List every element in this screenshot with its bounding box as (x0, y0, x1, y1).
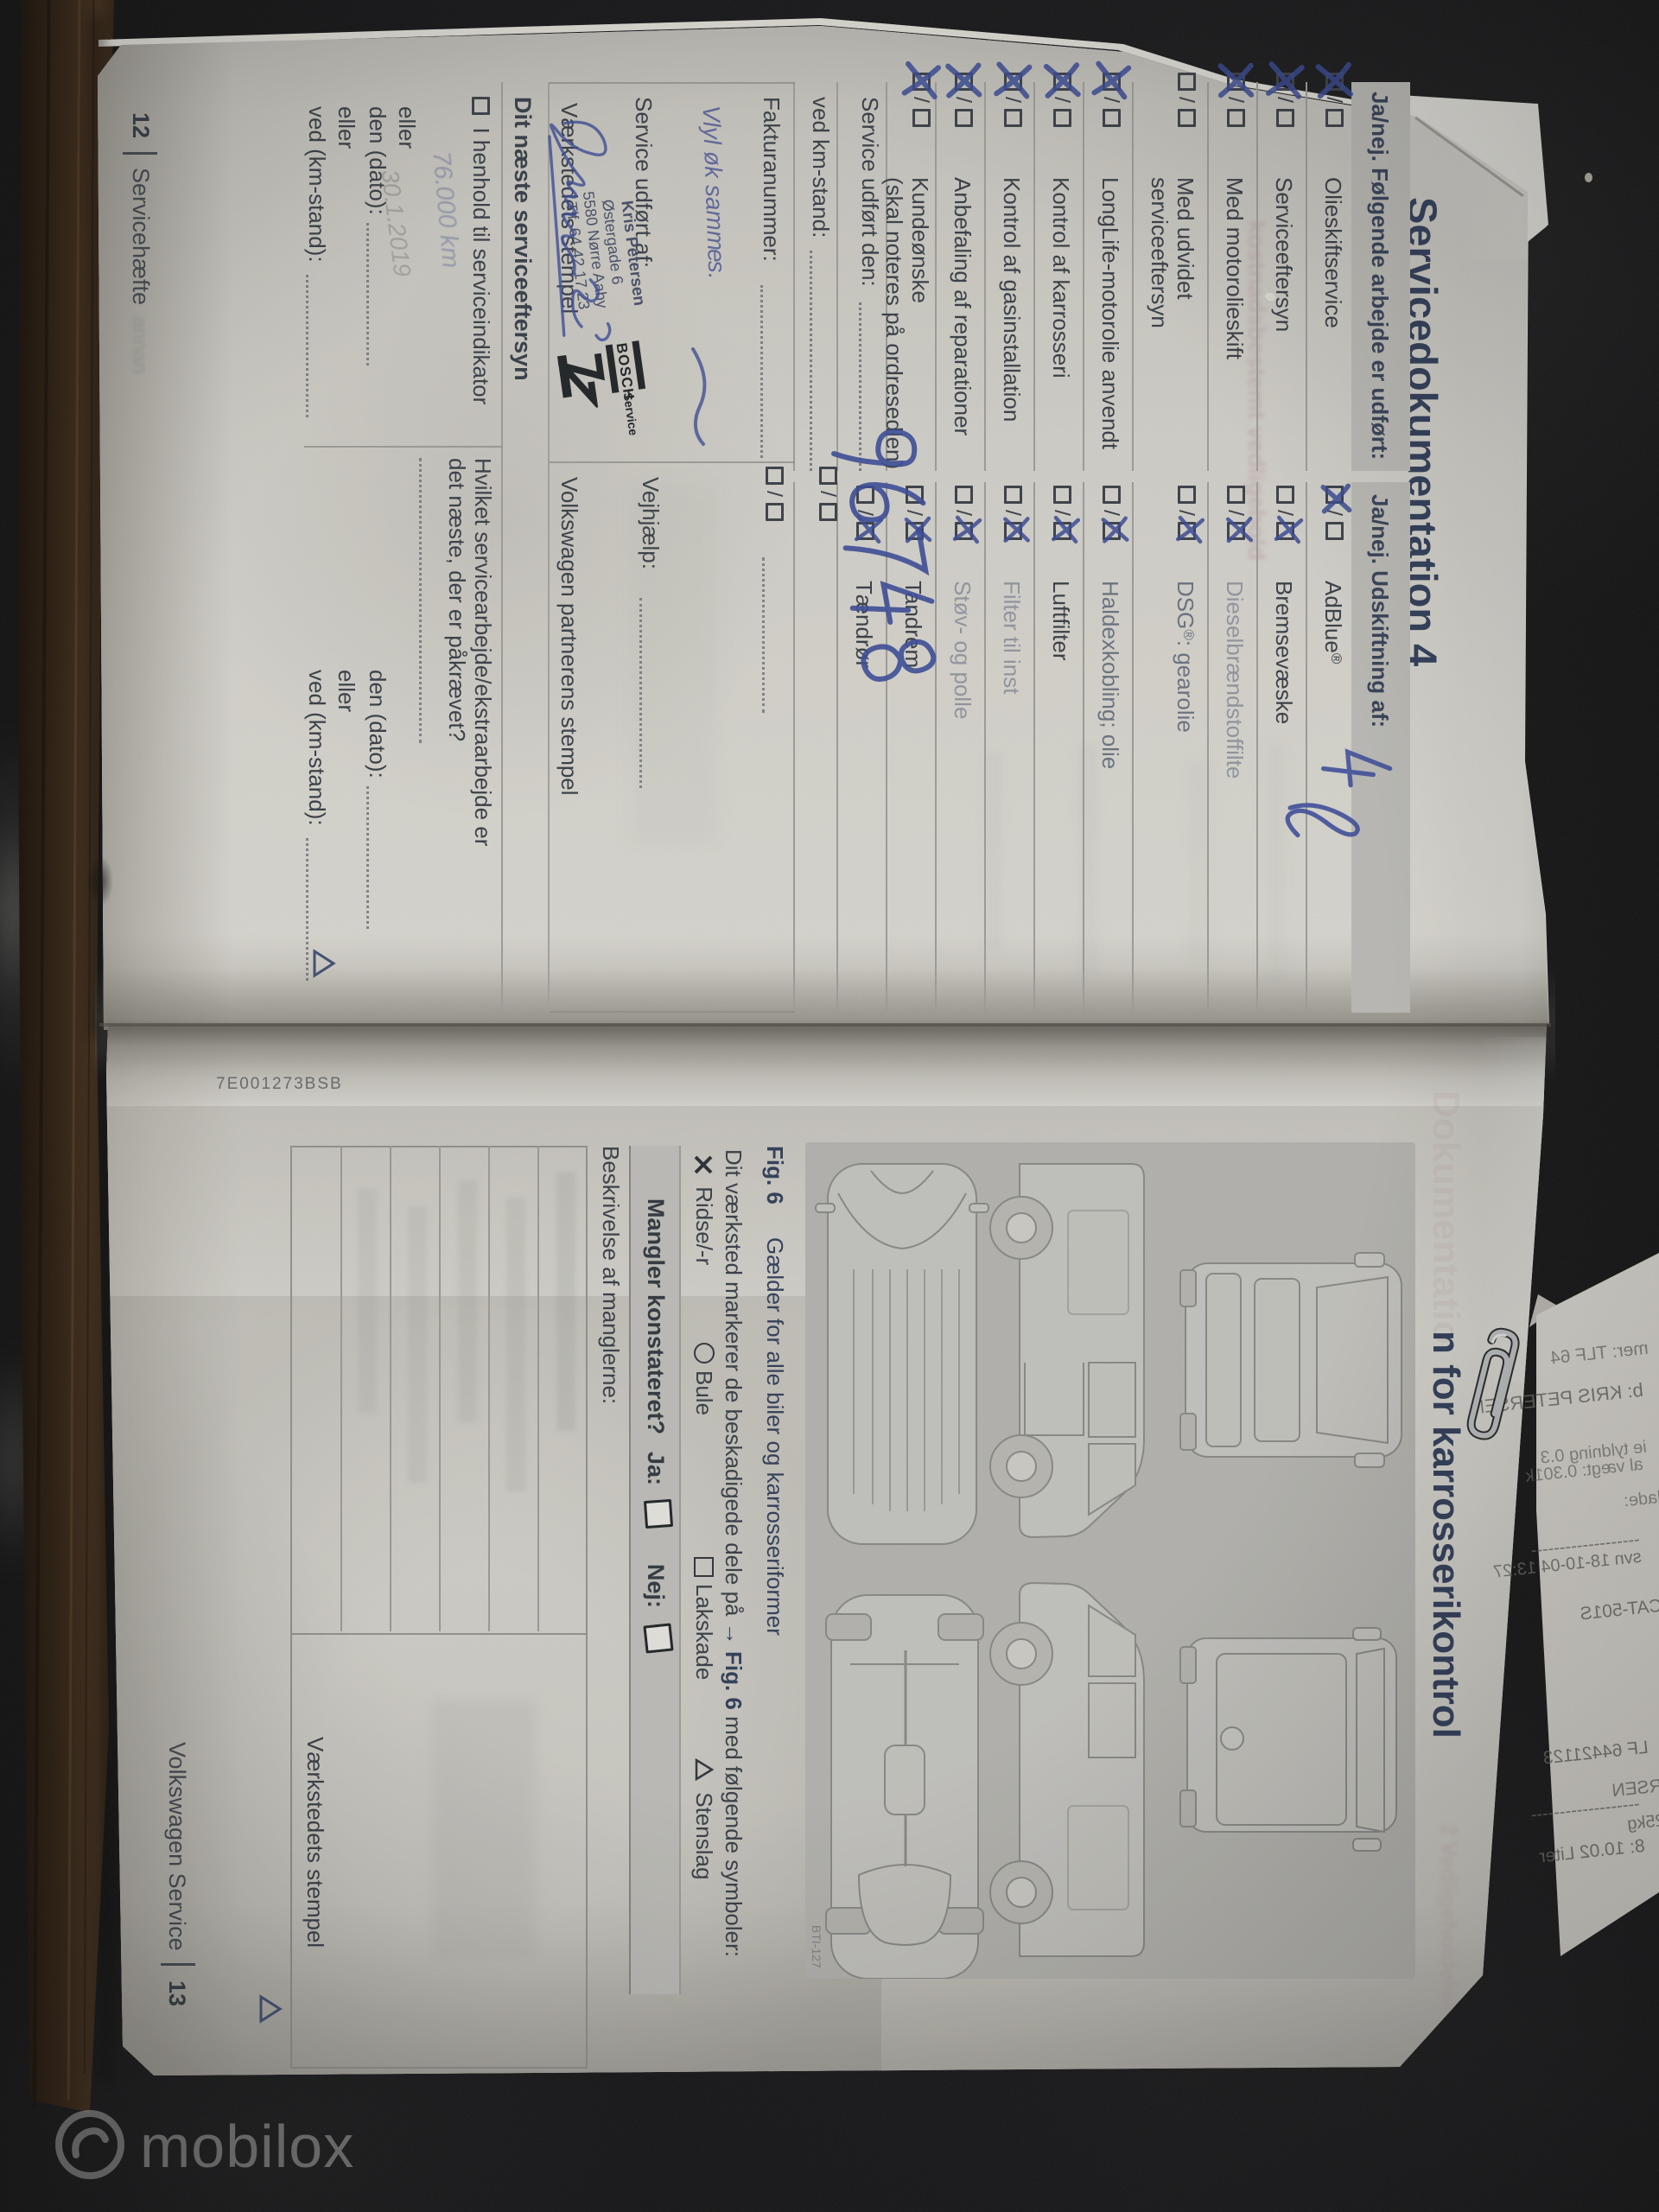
svg-text:BTI-127: BTI-127 (810, 1925, 823, 1968)
